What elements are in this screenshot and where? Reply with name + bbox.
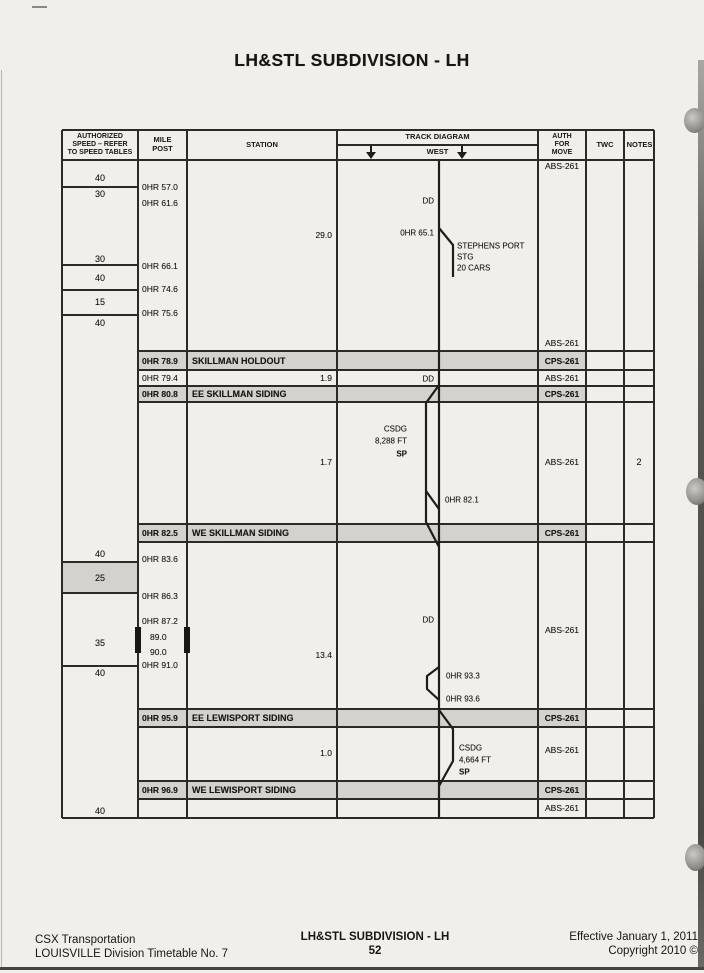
page-left-edge — [1, 70, 2, 968]
speed-limit: 40 — [95, 549, 105, 559]
table-border-horizontal — [62, 592, 138, 594]
footer-left: CSX Transportation LOUISVILLE Division T… — [35, 933, 228, 962]
yard-limit-marker — [184, 627, 190, 653]
footer-copyright: Copyright 2010 © — [569, 944, 698, 958]
table-border-vertical — [336, 130, 338, 818]
milepost: 0HR 79.4 — [142, 373, 178, 383]
speed-limit: 25 — [95, 573, 105, 583]
table-border-horizontal — [62, 289, 138, 291]
track-label: 0HR 93.6 — [446, 695, 480, 704]
station-row-auth: CPS-261 — [545, 528, 580, 538]
track-label: 0HR 82.1 — [445, 496, 479, 505]
speed-limit: 30 — [95, 254, 105, 264]
table-border-horizontal — [62, 665, 138, 667]
station-row-name: SKILLMAN HOLDOUT — [192, 356, 286, 366]
footer-subdivision: LH&STL SUBDIVISION - LH — [230, 930, 520, 944]
station-row-milepost: 0HR 95.9 — [142, 713, 178, 723]
header-twc: TWC — [587, 131, 623, 159]
hole-punch — [686, 478, 704, 505]
table-border-horizontal — [62, 186, 138, 188]
footer-center: LH&STL SUBDIVISION - LH 52 — [230, 930, 520, 958]
track-label: DD — [422, 375, 434, 384]
milepost: 0HR 87.2 — [142, 616, 178, 626]
table-border-horizontal — [62, 314, 138, 316]
header-notes: NOTES — [625, 131, 654, 159]
milepost: 0HR 66.1 — [142, 261, 178, 271]
table-border-horizontal — [138, 523, 654, 525]
station-row-milepost: 0HR 78.9 — [142, 356, 178, 366]
track-label: CSDG — [384, 425, 407, 434]
table-border-vertical — [653, 130, 655, 818]
track-label: SP — [396, 450, 407, 459]
speed-limit: 40 — [95, 806, 105, 816]
header-station: STATION — [188, 131, 336, 159]
auth-for-move: ABS-261 — [545, 457, 579, 467]
page-number: 52 — [230, 944, 520, 958]
auth-for-move: ABS-261 — [545, 161, 579, 171]
station-row-name: WE LEWISPORT SIDING — [192, 785, 296, 795]
track-label: DD — [422, 616, 434, 625]
table-border-vertical — [537, 130, 539, 818]
speed-limit: 40 — [95, 273, 105, 283]
table-border-horizontal — [62, 264, 138, 266]
stephens-port-spur-line — [439, 228, 453, 277]
speed-limit: 40 — [95, 173, 105, 183]
speed-limit: 30 — [95, 189, 105, 199]
auth-for-move: ABS-261 — [545, 625, 579, 635]
milepost: 0HR 86.3 — [142, 591, 178, 601]
table-border-horizontal — [138, 385, 654, 387]
footer-timetable: LOUISVILLE Division Timetable No. 7 — [35, 947, 228, 961]
table-border-horizontal — [138, 401, 654, 403]
table-border-vertical — [623, 130, 625, 818]
note-number: 2 — [636, 457, 641, 467]
track-label: 0HR 65.1 — [400, 229, 434, 238]
table-border-horizontal — [138, 350, 654, 352]
station-row-auth: CPS-261 — [545, 356, 580, 366]
pocket-track-line — [427, 667, 439, 700]
table-border-vertical — [186, 130, 188, 818]
hole-punch — [684, 108, 704, 133]
table-border-horizontal — [138, 708, 654, 710]
speed-limit: 40 — [95, 318, 105, 328]
station-row-auth: CPS-261 — [545, 389, 580, 399]
speed-limit: 40 — [95, 668, 105, 678]
hole-punch — [685, 844, 704, 871]
speed-limit: 35 — [95, 638, 105, 648]
page: LH&STL SUBDIVISION - LH AUTHORIZED SPEED… — [0, 0, 704, 973]
track-label: 4,664 FT — [459, 756, 491, 765]
station-distance: 1.7 — [320, 457, 332, 467]
page-edge-shadow — [698, 60, 704, 968]
table-border-vertical — [61, 130, 63, 818]
table-border-vertical — [137, 130, 139, 818]
track-label: STG — [457, 253, 473, 262]
page-bottom-edge — [0, 967, 704, 970]
track-label: STEPHENS PORT — [457, 242, 524, 251]
station-row-milepost: 0HR 96.9 — [142, 785, 178, 795]
track-label: 0HR 93.3 — [446, 672, 480, 681]
track-label: 20 CARS — [457, 264, 490, 273]
table-border-vertical — [585, 130, 587, 818]
auth-for-move: ABS-261 — [545, 745, 579, 755]
header-authorized-speed: AUTHORIZED SPEED – REFER TO SPEED TABLES — [63, 131, 137, 159]
station-row-name: EE LEWISPORT SIDING — [192, 713, 294, 723]
milepost: 0HR 61.6 — [142, 198, 178, 208]
auth-for-move: ABS-261 — [545, 338, 579, 348]
track-label: DD — [422, 197, 434, 206]
table-border-horizontal — [62, 817, 654, 819]
station-row-auth: CPS-261 — [545, 713, 580, 723]
milepost: 0HR 57.0 — [142, 182, 178, 192]
table-border-horizontal — [138, 541, 654, 543]
station-distance: 13.4 — [315, 650, 332, 660]
header-mile-post: MILE POST — [139, 131, 186, 159]
header-auth-for-move: AUTH FOR MOVE — [539, 131, 585, 159]
station-row-name: WE SKILLMAN SIDING — [192, 528, 289, 538]
auth-for-move: ABS-261 — [545, 373, 579, 383]
milepost: 0HR 83.6 — [142, 554, 178, 564]
yard-limit-marker — [135, 627, 141, 653]
footer-effective-date: Effective January 1, 2011 — [569, 930, 698, 944]
station-row-milepost: 0HR 82.5 — [142, 528, 178, 538]
header-track-diagram: TRACK DIAGRAM — [338, 130, 537, 145]
scan-artifact — [32, 6, 47, 8]
speed-limit: 15 — [95, 297, 105, 307]
table-border-horizontal — [138, 369, 654, 371]
station-distance: 29.0 — [315, 230, 332, 240]
milepost: 89.0 — [150, 632, 167, 642]
milepost: 0HR 91.0 — [142, 660, 178, 670]
track-label: CSDG — [459, 744, 482, 753]
footer-right: Effective January 1, 2011 Copyright 2010… — [569, 930, 698, 959]
station-row-milepost: 0HR 80.8 — [142, 389, 178, 399]
station-row-name: EE SKILLMAN SIDING — [192, 389, 287, 399]
table-border-horizontal — [138, 780, 654, 782]
header-west: WEST — [338, 145, 537, 160]
milepost: 90.0 — [150, 647, 167, 657]
station-row-auth: CPS-261 — [545, 785, 580, 795]
track-label: 8,288 FT — [375, 437, 407, 446]
table-border-horizontal — [138, 798, 654, 800]
station-distance: 1.0 — [320, 748, 332, 758]
page-title: LH&STL SUBDIVISION - LH — [0, 50, 704, 71]
milepost: 0HR 74.6 — [142, 284, 178, 294]
table-border-horizontal — [138, 726, 654, 728]
auth-for-move: ABS-261 — [545, 803, 579, 813]
skillman-crossover-line — [426, 491, 439, 509]
track-label: SP — [459, 768, 470, 777]
footer-company: CSX Transportation — [35, 933, 228, 947]
station-distance: 1.9 — [320, 373, 332, 383]
table-border-horizontal — [62, 561, 138, 563]
milepost: 0HR 75.6 — [142, 308, 178, 318]
